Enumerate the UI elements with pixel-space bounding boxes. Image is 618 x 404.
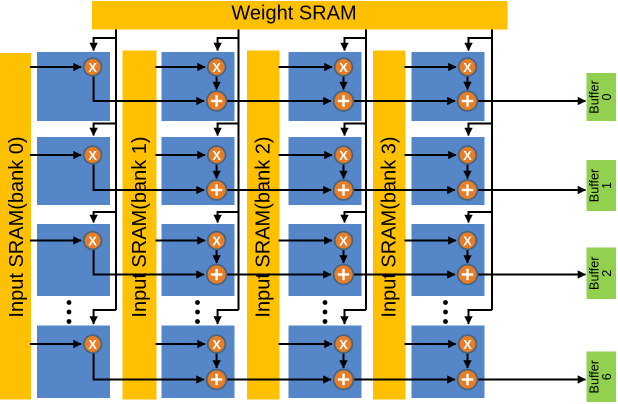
svg-text:X: X [339, 148, 348, 163]
svg-text:X: X [339, 60, 348, 75]
svg-text:0: 0 [600, 93, 614, 100]
svg-text:2: 2 [600, 270, 614, 277]
svg-text:X: X [463, 60, 472, 75]
svg-text:X: X [463, 337, 472, 352]
svg-text:X: X [212, 234, 221, 249]
svg-text:Input SRAM(bank 1): Input SRAM(bank 1) [129, 136, 151, 317]
svg-text:X: X [339, 234, 348, 249]
svg-text:X: X [88, 60, 97, 75]
svg-text:Weight SRAM: Weight SRAM [231, 3, 356, 25]
svg-text:X: X [463, 148, 472, 163]
svg-text:6: 6 [600, 373, 614, 380]
svg-text:X: X [88, 148, 97, 163]
svg-text:X: X [339, 337, 348, 352]
svg-text:X: X [463, 234, 472, 249]
svg-text:Input SRAM(bank 3): Input SRAM(bank 3) [379, 136, 401, 317]
svg-text:Input SRAM(bank 2): Input SRAM(bank 2) [253, 136, 275, 317]
svg-text:X: X [212, 148, 221, 163]
svg-text:1: 1 [600, 182, 614, 189]
svg-text:X: X [88, 234, 97, 249]
svg-text:X: X [212, 337, 221, 352]
svg-text:X: X [212, 60, 221, 75]
svg-text:X: X [88, 337, 97, 352]
svg-text:Input SRAM(bank 0): Input SRAM(bank 0) [6, 136, 28, 317]
